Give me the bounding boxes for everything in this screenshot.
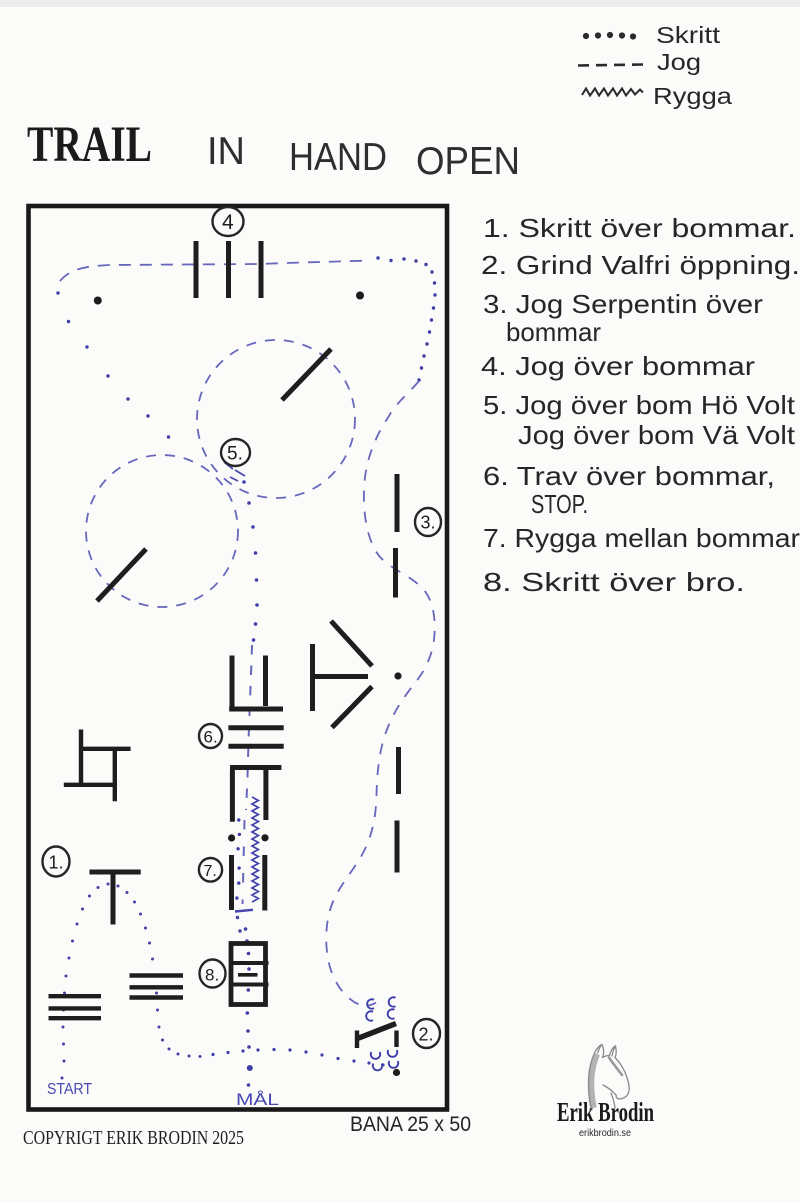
svg-text:5. Jog över bom Hö Volt: 5. Jog över bom Hö Volt — [483, 390, 796, 420]
svg-text:7.: 7. — [204, 863, 217, 880]
svg-text:5.: 5. — [227, 444, 243, 465]
svg-text:2.: 2. — [419, 1025, 434, 1045]
svg-text:4. Jog över bommar: 4. Jog över bommar — [481, 351, 755, 381]
svg-text:Jog över bom Vä Volt: Jog över bom Vä Volt — [518, 420, 796, 450]
svg-text:8. Skritt över bro.: 8. Skritt över bro. — [483, 567, 745, 597]
svg-text:Skritt: Skritt — [656, 22, 721, 48]
svg-text:3. Jog Serpentin över: 3. Jog Serpentin över — [483, 289, 763, 319]
svg-text:1.: 1. — [49, 853, 64, 873]
svg-text:BANA 25 x 50: BANA 25 x 50 — [350, 1113, 471, 1136]
svg-text:6.: 6. — [204, 728, 218, 747]
svg-text:Rygga: Rygga — [653, 83, 732, 109]
svg-text:8.: 8. — [205, 966, 219, 985]
svg-text:START: START — [47, 1081, 92, 1098]
svg-text:MÅL: MÅL — [236, 1090, 279, 1109]
svg-text:TRAIL: TRAIL — [27, 117, 152, 173]
svg-text:OPEN: OPEN — [416, 140, 520, 183]
svg-text:IN: IN — [207, 130, 245, 173]
svg-text:erikbrodin.se: erikbrodin.se — [579, 1127, 631, 1139]
svg-text:Erik Brodin: Erik Brodin — [557, 1097, 654, 1127]
svg-text:7. Rygga mellan bommar: 7. Rygga mellan bommar — [483, 523, 800, 553]
svg-text:6. Trav över bommar,: 6. Trav över bommar, — [483, 461, 775, 491]
svg-text:bommar: bommar — [506, 317, 601, 347]
svg-text:Jog: Jog — [657, 49, 701, 75]
svg-text:3.: 3. — [421, 513, 436, 533]
svg-text:HAND: HAND — [289, 136, 387, 179]
svg-text:4: 4 — [222, 211, 234, 234]
svg-text:STOP.: STOP. — [531, 489, 588, 519]
svg-text:2. Grind Valfri öppning.: 2. Grind Valfri öppning. — [481, 250, 800, 280]
svg-text:1. Skritt över bommar.: 1. Skritt över bommar. — [483, 213, 796, 243]
svg-text:COPYRIGT ERIK BRODIN 2025: COPYRIGT ERIK BRODIN 2025 — [23, 1127, 244, 1149]
